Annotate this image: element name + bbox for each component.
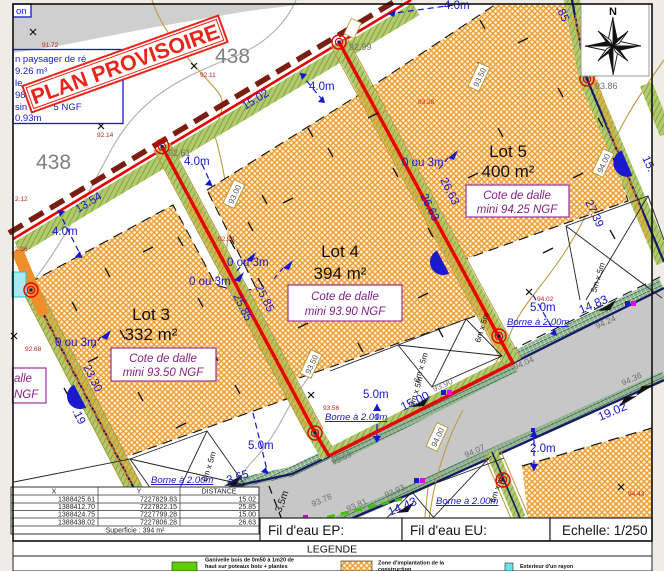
svg-text:91.72: 91.72 <box>42 42 59 49</box>
svg-text:26.63: 26.63 <box>238 520 256 527</box>
svg-text:0 ou 3m: 0 ou 3m <box>189 276 231 288</box>
svg-text:NGF: NGF <box>14 389 39 401</box>
svg-text:0 ou 3m: 0 ou 3m <box>402 157 444 169</box>
svg-text:Fil d'eau EU:: Fil d'eau EU: <box>410 523 487 538</box>
svg-text:1388425.61: 1388425.61 <box>58 497 95 504</box>
svg-text:93.86: 93.86 <box>595 81 618 91</box>
svg-text:haut sur poteaux bois + plante: haut sur poteaux bois + plantes <box>205 564 288 570</box>
svg-text:438: 438 <box>36 151 71 174</box>
svg-text:400 m²: 400 m² <box>482 162 535 181</box>
svg-text:X: X <box>52 489 57 496</box>
svg-text:1388412.70: 1388412.70 <box>58 504 95 511</box>
svg-text:1388438.02: 1388438.02 <box>58 520 95 527</box>
svg-text:LEGENDE: LEGENDE <box>307 544 357 556</box>
svg-text:Lot 5: Lot 5 <box>489 142 527 161</box>
svg-text:94.02: 94.02 <box>537 296 554 303</box>
svg-text:Echelle: 1/250: Echelle: 1/250 <box>562 523 648 538</box>
svg-text:0 ou 3m: 0 ou 3m <box>55 337 97 349</box>
svg-text:0 ou 3m: 0 ou 3m <box>227 257 269 269</box>
svg-text:Lot 4: Lot 4 <box>321 242 359 261</box>
svg-text:9.26 m³: 9.26 m³ <box>15 66 47 77</box>
svg-text:Cote de dalle: Cote de dalle <box>129 353 197 365</box>
svg-text:94.43: 94.43 <box>628 491 645 498</box>
svg-text:1388424.75: 1388424.75 <box>58 512 95 519</box>
svg-text:4.0m: 4.0m <box>52 226 78 238</box>
svg-text:93.56: 93.56 <box>323 405 340 412</box>
svg-text:DISTANCE: DISTANCE <box>202 489 237 496</box>
svg-text:438: 438 <box>215 45 250 68</box>
svg-text:le: le <box>15 78 22 89</box>
svg-text:92.98: 92.98 <box>218 236 235 243</box>
svg-text:Superficie : 394 m²: Superficie : 394 m² <box>106 528 165 535</box>
svg-text:2.0m: 2.0m <box>530 443 556 455</box>
svg-text:7227822.15: 7227822.15 <box>140 504 177 511</box>
svg-text:15.00: 15.00 <box>238 512 256 519</box>
svg-text:Zone d'implantation de la: Zone d'implantation de la <box>378 561 445 567</box>
svg-text:93.28: 93.28 <box>418 99 435 106</box>
svg-text:4.0m: 4.0m <box>444 0 470 12</box>
svg-text:mini 93.50 NGF: mini 93.50 NGF <box>123 367 205 379</box>
svg-text:Borne à 2.00m: Borne à 2.00m <box>325 412 387 423</box>
svg-text:Ganivelle bois de 0m50 à 1m20: Ganivelle bois de 0m50 à 1m20 de <box>205 558 294 564</box>
svg-text:0.93m: 0.93m <box>15 113 41 124</box>
svg-text:alle: alle <box>14 373 32 385</box>
svg-text:Cote de dalle: Cote de dalle <box>311 291 379 303</box>
svg-text:mini 93.90 NGF: mini 93.90 NGF <box>305 306 387 318</box>
svg-text:Y: Y <box>137 489 142 496</box>
svg-text:n paysager de ré: n paysager de ré <box>15 54 86 65</box>
svg-text:92.68: 92.68 <box>25 346 42 353</box>
svg-text:5.0m: 5.0m <box>530 302 556 314</box>
svg-text:7227799.28: 7227799.28 <box>140 512 177 519</box>
svg-text:5.0m: 5.0m <box>248 440 274 452</box>
svg-text:92.14: 92.14 <box>97 132 114 139</box>
svg-text:mini 94.25 NGF: mini 94.25 NGF <box>477 204 559 216</box>
svg-text:N: N <box>609 6 617 18</box>
svg-text:7227829.83: 7227829.83 <box>140 497 177 504</box>
svg-text:Lot 3: Lot 3 <box>132 305 170 324</box>
svg-text:Borne à 2.00m: Borne à 2.00m <box>507 317 569 328</box>
svg-text:332 m²: 332 m² <box>125 325 178 344</box>
svg-text:construction: construction <box>378 567 412 571</box>
svg-text:Fil d'eau EP:: Fil d'eau EP: <box>268 523 344 538</box>
svg-text:4.0m: 4.0m <box>309 81 335 93</box>
svg-text:Cote de dalle: Cote de dalle <box>483 190 551 202</box>
svg-text:5.0m: 5.0m <box>363 389 389 401</box>
svg-text:92.11: 92.11 <box>200 72 216 79</box>
svg-text:25.85: 25.85 <box>238 504 256 511</box>
svg-text:on: on <box>16 6 27 17</box>
svg-text:2.36: 2.36 <box>15 246 28 253</box>
svg-text:92.61: 92.61 <box>168 148 191 158</box>
svg-text:Exterieur d'un rayon: Exterieur d'un rayon <box>520 564 574 570</box>
svg-text:2.12: 2.12 <box>15 196 28 203</box>
svg-text:15.02: 15.02 <box>238 497 256 504</box>
svg-text:394 m²: 394 m² <box>314 264 367 283</box>
svg-text:92.99: 92.99 <box>349 42 372 52</box>
svg-text:7227806.28: 7227806.28 <box>140 520 177 527</box>
